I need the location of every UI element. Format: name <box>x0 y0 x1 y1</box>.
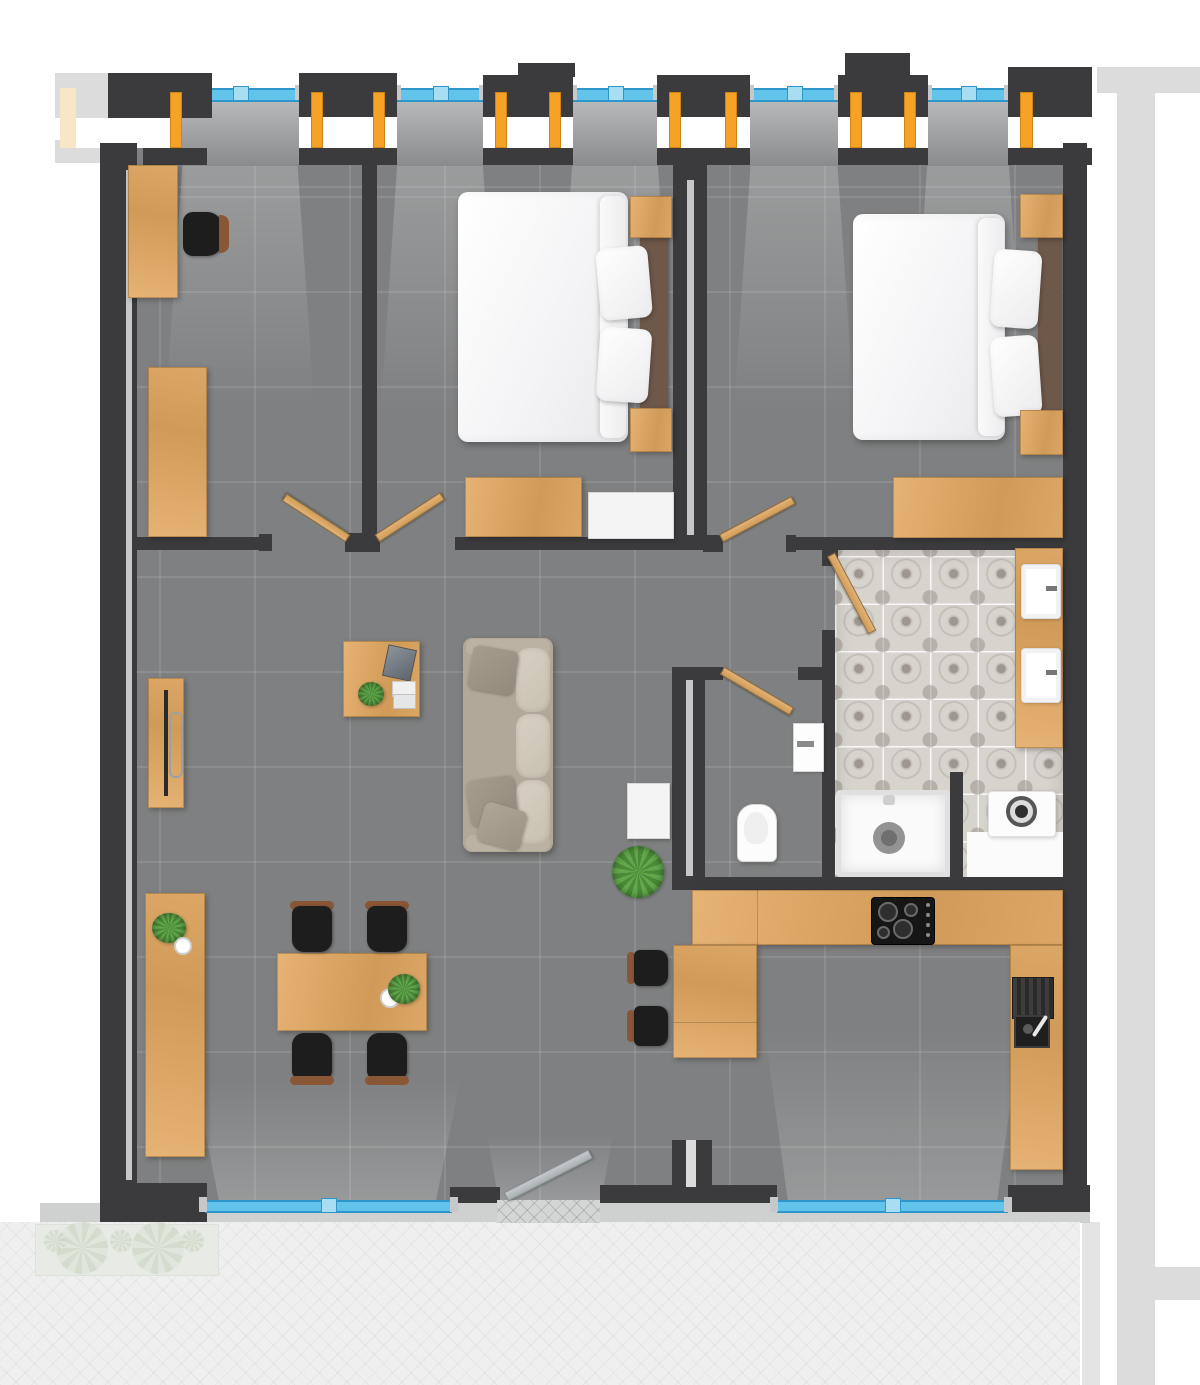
dresser <box>465 477 582 537</box>
cooktop-knob <box>926 913 930 917</box>
wall-bottom-stub <box>696 1140 712 1187</box>
wall-office-bedroom1 <box>362 165 377 540</box>
dining-chair <box>367 906 407 952</box>
dresser-white-cabinet <box>588 492 674 539</box>
sink-faucet <box>1046 586 1057 591</box>
office-chair-back <box>219 215 229 253</box>
cup <box>174 937 192 955</box>
window-bay-floor <box>573 98 657 166</box>
entrance-threshold <box>497 1200 600 1223</box>
washing-machine-door-inner <box>1015 805 1028 818</box>
kitchen-sink <box>1012 977 1054 1019</box>
window-frame-orange <box>669 92 681 148</box>
window-mullion <box>608 86 624 101</box>
floor-plant <box>612 846 664 898</box>
window-cap <box>199 1197 207 1212</box>
bed-pillow <box>595 326 652 403</box>
window-pillar-white <box>862 117 904 148</box>
cooktop-burner <box>878 902 898 922</box>
wall-core-stripe <box>687 180 694 535</box>
window-bay-floor <box>397 98 483 166</box>
sofa-back-cushion <box>516 648 550 712</box>
bathroom-white-floor <box>967 832 1063 878</box>
window-pillar-white <box>507 117 549 148</box>
exterior-structure <box>1082 1222 1100 1385</box>
nightstand <box>630 408 672 452</box>
window-frame-orange <box>495 92 507 148</box>
desk <box>128 165 178 298</box>
bathroom-sink <box>1021 564 1061 619</box>
window-mullion <box>885 1198 901 1213</box>
floor-plan <box>0 0 1200 1385</box>
window-pillar <box>108 73 212 118</box>
bookcase <box>148 367 207 537</box>
counter-seam <box>673 1022 757 1023</box>
bathroom-sink <box>1021 648 1061 703</box>
window-frame-orange <box>170 92 182 148</box>
wall-wc-bath-south <box>672 877 1063 890</box>
window-mullion <box>433 86 449 101</box>
bed-pillow <box>595 245 653 321</box>
wall-bottom-stub-core <box>686 1140 696 1187</box>
wall-wc-north <box>672 667 723 680</box>
bed-pillow <box>989 334 1042 417</box>
planter-plant <box>132 1222 184 1274</box>
cooktop-knob <box>926 903 930 907</box>
window-pillar-white <box>1033 117 1063 148</box>
bench-handle <box>169 712 183 778</box>
wall-segment <box>838 148 928 165</box>
books <box>393 694 416 709</box>
window-bay-floor <box>928 98 1008 166</box>
bed-pillow <box>989 248 1042 329</box>
window-frame-orange <box>725 92 737 148</box>
planter-plant <box>56 1222 108 1274</box>
wall-bottom-stub <box>672 1140 686 1187</box>
window-mullion <box>787 86 803 101</box>
wall-shower-partition <box>950 772 963 877</box>
wall-right-exterior <box>1063 143 1087 1207</box>
window-cap <box>1004 1197 1012 1212</box>
wall-wc-north <box>798 667 835 680</box>
wall-office-south <box>137 537 271 550</box>
dining-chair <box>292 1033 332 1079</box>
window-frame-orange <box>549 92 561 148</box>
dining-chair-back <box>365 1076 409 1085</box>
dresser <box>893 477 1063 538</box>
nightstand <box>1020 194 1063 238</box>
exterior-structure-beige <box>60 88 76 148</box>
bar-chair <box>634 1006 668 1046</box>
dining-chair <box>367 1033 407 1079</box>
shower-drain <box>873 822 905 854</box>
exterior-structure <box>1155 1267 1200 1300</box>
window-mullion <box>233 86 249 101</box>
planter-plant <box>182 1230 204 1252</box>
sink-faucet <box>1046 670 1057 675</box>
counter-seam <box>757 890 758 945</box>
sink-drain <box>1023 1024 1033 1034</box>
window-frame-orange <box>904 92 916 148</box>
bench-rail <box>164 690 168 796</box>
window-light <box>755 960 1030 1202</box>
planter-plant <box>110 1230 132 1252</box>
wall-corner-bottom-left <box>100 1183 207 1222</box>
table-plant <box>358 682 384 706</box>
window-pillar-white <box>681 117 725 148</box>
nightstand <box>630 196 672 238</box>
wc-basin <box>793 723 824 772</box>
wall-segment <box>657 148 750 165</box>
sofa-pillow <box>467 644 520 695</box>
toilet-bowl <box>744 812 768 844</box>
wall-core-stripe <box>686 680 693 876</box>
wall-segment <box>143 148 207 165</box>
window-pillar-tab <box>845 53 910 77</box>
dining-chair-back <box>290 1076 334 1085</box>
window-cap <box>450 1197 458 1212</box>
window-frame-orange <box>850 92 862 148</box>
wc-basin-faucet <box>797 741 814 747</box>
window-bay-floor <box>750 98 838 166</box>
shoe-cabinet <box>627 783 670 839</box>
shower-head <box>883 795 895 805</box>
wall-core-stripe <box>126 170 132 1180</box>
office-chair <box>183 212 223 256</box>
window-light <box>728 166 860 496</box>
nightstand <box>1020 410 1063 455</box>
window-cap <box>770 1197 778 1212</box>
cooktop-knob <box>926 923 930 927</box>
window-pillar-white <box>323 117 373 148</box>
cooktop-knob <box>926 933 930 937</box>
wall-jamb <box>259 534 272 551</box>
window-frame-orange <box>373 92 385 148</box>
exterior-corridor-strip <box>1117 67 1155 1385</box>
wall-segment <box>483 148 573 165</box>
dining-chair <box>292 906 332 952</box>
kitchen-peninsula <box>673 945 757 1058</box>
bar-chair <box>634 950 668 986</box>
planter-plant <box>44 1230 66 1252</box>
window-mullion <box>321 1198 337 1213</box>
window-frame-orange <box>311 92 323 148</box>
cooktop-burner <box>877 926 890 939</box>
wall-corner-bottom-right <box>1008 1185 1090 1212</box>
wall-bottom-segment <box>600 1185 777 1203</box>
wall-segment <box>299 148 397 165</box>
window-mullion <box>961 86 977 101</box>
window-frame-orange <box>1020 92 1033 148</box>
cooktop-burner <box>904 903 918 917</box>
table-plant <box>388 974 420 1004</box>
cooktop-burner <box>893 919 913 939</box>
sofa-back-cushion <box>516 714 550 778</box>
